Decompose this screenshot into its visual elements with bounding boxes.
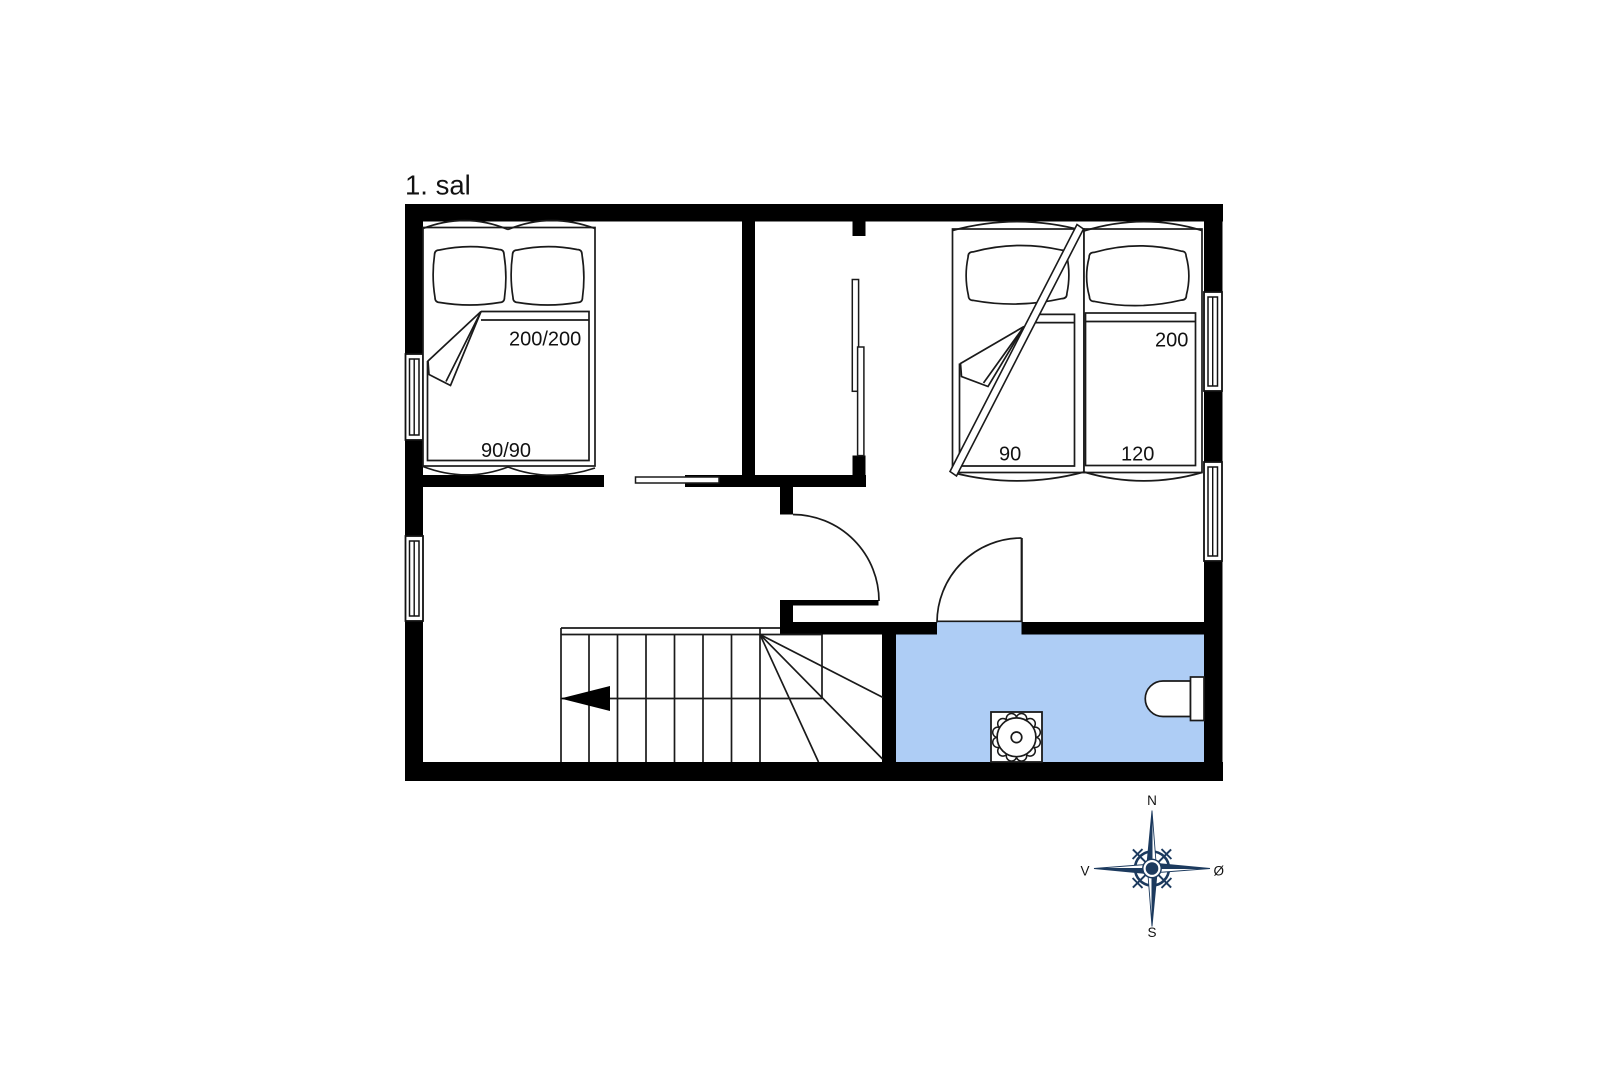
svg-text:Ø: Ø	[1214, 864, 1225, 879]
svg-text:V: V	[1080, 864, 1089, 879]
svg-text:200/200: 200/200	[509, 329, 581, 351]
svg-text:N: N	[1147, 793, 1157, 808]
svg-text:200: 200	[1155, 330, 1188, 352]
svg-text:1. sal: 1. sal	[405, 169, 471, 200]
svg-text:90/90: 90/90	[481, 440, 531, 462]
svg-text:S: S	[1147, 925, 1156, 940]
svg-text:120: 120	[1121, 444, 1154, 466]
svg-text:90: 90	[999, 444, 1021, 466]
